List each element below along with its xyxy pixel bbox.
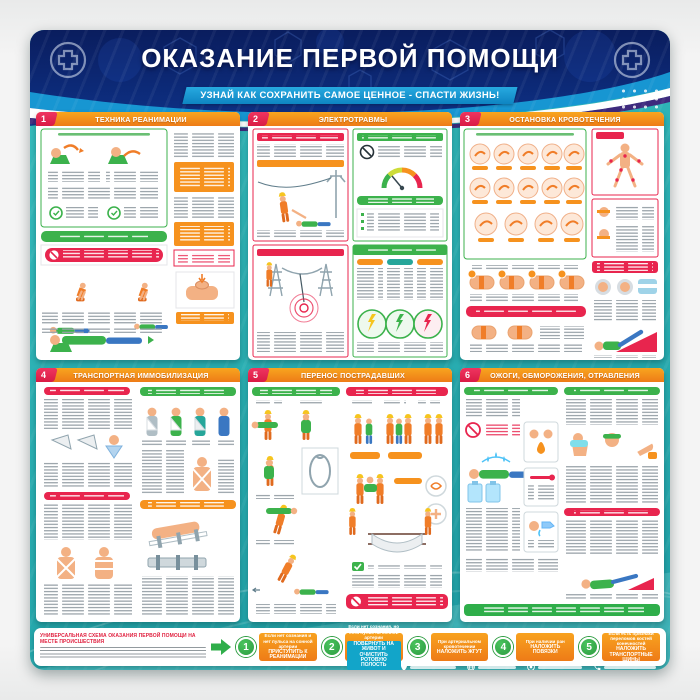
panel-6-illustration bbox=[460, 382, 664, 622]
step-action: ПОВЕРНУТЬ НА ЖИВОТ И ОЧИСТИТЬ РОТОВУЮ ПО… bbox=[347, 641, 401, 670]
step-condition: Если есть признаки переломов костей коне… bbox=[604, 631, 658, 646]
panel-number: 1 bbox=[41, 114, 46, 124]
panel-header: 3 ОСТАНОВКА КРОВОТЕЧЕНИЯ bbox=[460, 112, 664, 126]
footer-contacts bbox=[401, 663, 656, 670]
panel-number-badge: 5 bbox=[248, 368, 270, 382]
panel-number-badge: 6 bbox=[460, 368, 482, 382]
panel-4-transport-immobilization: 4 ТРАНСПОРТНАЯ ИММОБИЛИЗАЦИЯ bbox=[36, 368, 240, 622]
poster-page: ОКАЗАНИЕ ПЕРВОЙ ПОМОЩИ УЗНАЙ КАК СОХРАНИ… bbox=[0, 0, 700, 700]
step-condition: Если нет сознания и нет пульса на сонной… bbox=[261, 633, 315, 648]
contact-phone bbox=[593, 663, 656, 670]
panel-2-electrical-injuries: 2 ЭЛЕКТРОТРАВМЫ bbox=[248, 112, 452, 360]
panel-title: ЭЛЕКТРОТРАВМЫ bbox=[268, 112, 452, 126]
scheme-step-2: 2 Если нет сознания, но есть пульс на со… bbox=[322, 633, 403, 661]
email-at-icon bbox=[527, 663, 535, 670]
panel-5-carrying-victims: 5 ПЕРЕНОС ПОСТРАДАВШИХ bbox=[248, 368, 452, 622]
step-number: 5 bbox=[579, 637, 599, 657]
step-condition: Если нет сознания, но есть пульс на сонн… bbox=[347, 624, 401, 639]
step-action: НАЛОЖИТЬ ПОВЯЗКИ bbox=[518, 645, 572, 656]
panel-header: 5 ПЕРЕНОС ПОСТРАДАВШИХ bbox=[248, 368, 452, 382]
panel-header: 1 ТЕХНИКА РЕАНИМАЦИИ bbox=[36, 112, 240, 126]
step-number: 1 bbox=[236, 637, 256, 657]
scheme-step-1: 1 Если нет сознания и нет пульса на сонн… bbox=[236, 633, 317, 661]
subtitle-ribbon: УЗНАЙ КАК СОХРАНИТЬ САМОЕ ЦЕННОЕ - СПАСТ… bbox=[182, 87, 517, 104]
poster-board: ОКАЗАНИЕ ПЕРВОЙ ПОМОЩИ УЗНАЙ КАК СОХРАНИ… bbox=[30, 30, 670, 670]
step-condition: При наличии ран bbox=[518, 639, 572, 644]
panel-number: 5 bbox=[253, 370, 258, 380]
step-number: 3 bbox=[408, 637, 428, 657]
dot-grid-decoration bbox=[618, 87, 662, 111]
panel-1-reanimation: 1 ТЕХНИКА РЕАНИМАЦИИ bbox=[36, 112, 240, 360]
panel-number-badge: 2 bbox=[248, 112, 270, 126]
subtitle-text: УЗНАЙ КАК СОХРАНИТЬ САМОЕ ЦЕННОЕ - СПАСТ… bbox=[200, 90, 499, 101]
panel-number: 2 bbox=[253, 114, 258, 124]
step-action: НАЛОЖИТЬ ЖГУТ bbox=[433, 650, 487, 655]
arrow-right-icon bbox=[211, 639, 231, 655]
scheme-step-5: 5 Если есть признаки переломов костей ко… bbox=[579, 633, 660, 661]
panel-3-illustration bbox=[460, 126, 664, 360]
panel-number: 4 bbox=[41, 370, 46, 380]
panel-title: ТРАНСПОРТНАЯ ИММОБИЛИЗАЦИЯ bbox=[56, 368, 240, 382]
panel-title: ОСТАНОВКА КРОВОТЕЧЕНИЯ bbox=[480, 112, 664, 126]
panel-header: 6 ОЖОГИ, ОБМОРОЖЕНИЯ, ОТРАВЛЕНИЯ bbox=[460, 368, 664, 382]
panel-5-illustration bbox=[248, 382, 452, 622]
step-number: 4 bbox=[493, 637, 513, 657]
scheme-step-4: 4 При наличии ран НАЛОЖИТЬ ПОВЯЗКИ bbox=[493, 633, 574, 661]
phone-icon bbox=[593, 663, 601, 670]
step-condition: При артериальном кровотечении bbox=[433, 639, 487, 649]
panel-2-illustration bbox=[248, 126, 452, 360]
universal-scheme-bar: УНИВЕРСАЛЬНАЯ СХЕМА ОКАЗАНИЯ ПЕРВОЙ ПОМО… bbox=[34, 628, 666, 666]
scheme-intro: УНИВЕРСАЛЬНАЯ СХЕМА ОКАЗАНИЯ ПЕРВОЙ ПОМО… bbox=[40, 634, 206, 660]
panel-4-illustration bbox=[36, 382, 240, 622]
panel-title: ОЖОГИ, ОБМОРОЖЕНИЯ, ОТРАВЛЕНИЯ bbox=[480, 368, 664, 382]
step-action: ПРИСТУПИТЬ К РЕАНИМАЦИИ bbox=[261, 650, 315, 661]
contact-text bbox=[478, 666, 516, 669]
panel-1-illustration bbox=[36, 126, 240, 360]
panel-3-bleeding-control: 3 ОСТАНОВКА КРОВОТЕЧЕНИЯ bbox=[460, 112, 664, 360]
contact-address bbox=[401, 663, 456, 670]
step-number: 2 bbox=[322, 637, 342, 657]
panel-number-badge: 4 bbox=[36, 368, 58, 382]
panel-number-badge: 1 bbox=[36, 112, 58, 126]
panel-number-badge: 3 bbox=[460, 112, 482, 126]
panel-header: 2 ЭЛЕКТРОТРАВМЫ bbox=[248, 112, 452, 126]
panel-title: ТЕХНИКА РЕАНИМАЦИИ bbox=[56, 112, 240, 126]
panel-6-burns-frostbite-poisoning: 6 ОЖОГИ, ОБМОРОЖЕНИЯ, ОТРАВЛЕНИЯ bbox=[460, 368, 664, 622]
panel-title: ПЕРЕНОС ПОСТРАДАВШИХ bbox=[268, 368, 452, 382]
panel-number: 6 bbox=[465, 370, 470, 380]
contact-email bbox=[527, 663, 582, 670]
panel-header: 4 ТРАНСПОРТНАЯ ИММОБИЛИЗАЦИЯ bbox=[36, 368, 240, 382]
location-pin-icon bbox=[401, 663, 407, 670]
contact-text bbox=[538, 666, 582, 669]
scheme-title: УНИВЕРСАЛЬНАЯ СХЕМА ОКАЗАНИЯ ПЕРВОЙ ПОМО… bbox=[40, 634, 206, 645]
globe-icon bbox=[467, 663, 475, 670]
panel-number: 3 bbox=[465, 114, 470, 124]
contact-website bbox=[467, 663, 516, 670]
contact-text bbox=[410, 666, 456, 669]
scheme-step-3: 3 При артериальном кровотечении НАЛОЖИТЬ… bbox=[408, 633, 489, 661]
scheme-intro-text bbox=[40, 647, 206, 660]
step-action: НАЛОЖИТЬ ТРАНСПОРТНЫЕ ШИНЫ bbox=[604, 647, 658, 663]
contact-text bbox=[604, 666, 656, 669]
